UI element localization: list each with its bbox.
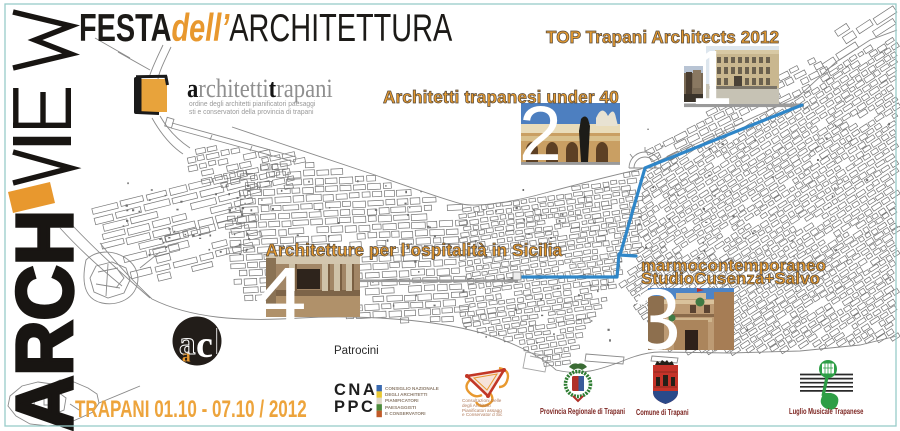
svg-text:a: a (182, 347, 191, 366)
svg-text:c: c (196, 324, 213, 366)
